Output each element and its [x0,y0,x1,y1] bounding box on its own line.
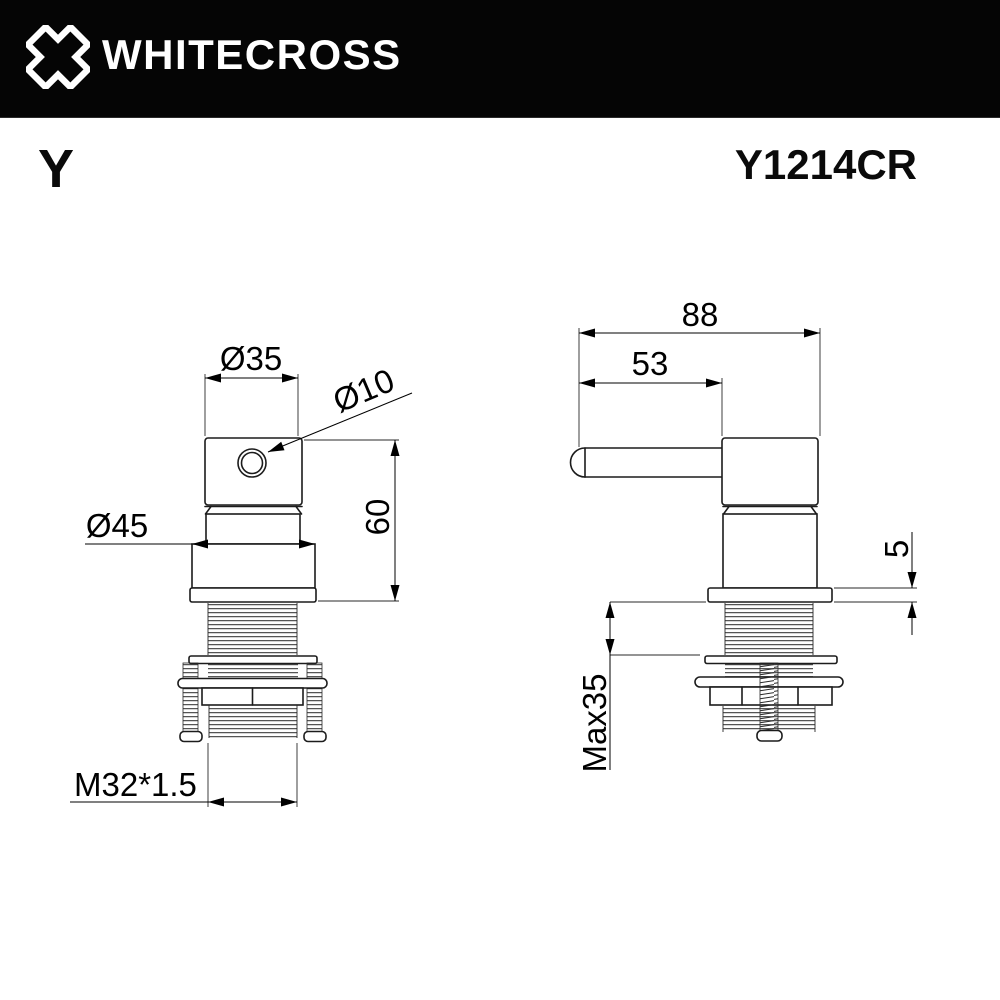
valve-body-front [205,438,302,505]
valve-body-side [722,438,818,505]
stud-cap-center [757,731,782,742]
mounting-stud-center [760,663,778,731]
datasheet-page: WHITECROSS Y Y1214CR Ø35 [0,0,1000,1000]
dim-hole-diameter-label: Ø10 [328,361,400,419]
mounting-stud-left [183,663,198,732]
mounting-bracket-front [178,679,327,689]
lever-handle-side [571,448,723,477]
front-view-drawing: Ø35 Ø10 Ø45 [70,340,412,807]
side-view-drawing: 88 53 [571,296,918,773]
dim-base-diameter-label: Ø45 [86,507,148,544]
dim-total-length-label: 88 [682,296,719,333]
valve-neck-side [723,514,817,588]
valve-base-front [192,544,315,588]
dim-thread-spec-label: M32*1.5 [74,766,197,803]
mounting-stud-right [307,663,322,732]
stud-cap-right [304,732,326,742]
washer-front [189,656,317,664]
washer-side [705,656,837,664]
stud-cap-left [180,732,202,742]
thread-shank-front [208,603,297,655]
valve-neck-front [206,514,300,544]
technical-drawing: Ø35 Ø10 Ø45 [0,0,1000,1000]
dim-flange-thickness-label: 5 [878,540,915,558]
dim-body-height-label: 60 [359,499,396,536]
thread-shank-side [725,603,813,655]
dim-top-diameter-label: Ø35 [220,340,282,377]
dim-max-mounting-label: Max35 [576,673,613,772]
flange-side [708,588,832,602]
flange-front [190,588,316,602]
dim-handle-length-label: 53 [632,345,669,382]
